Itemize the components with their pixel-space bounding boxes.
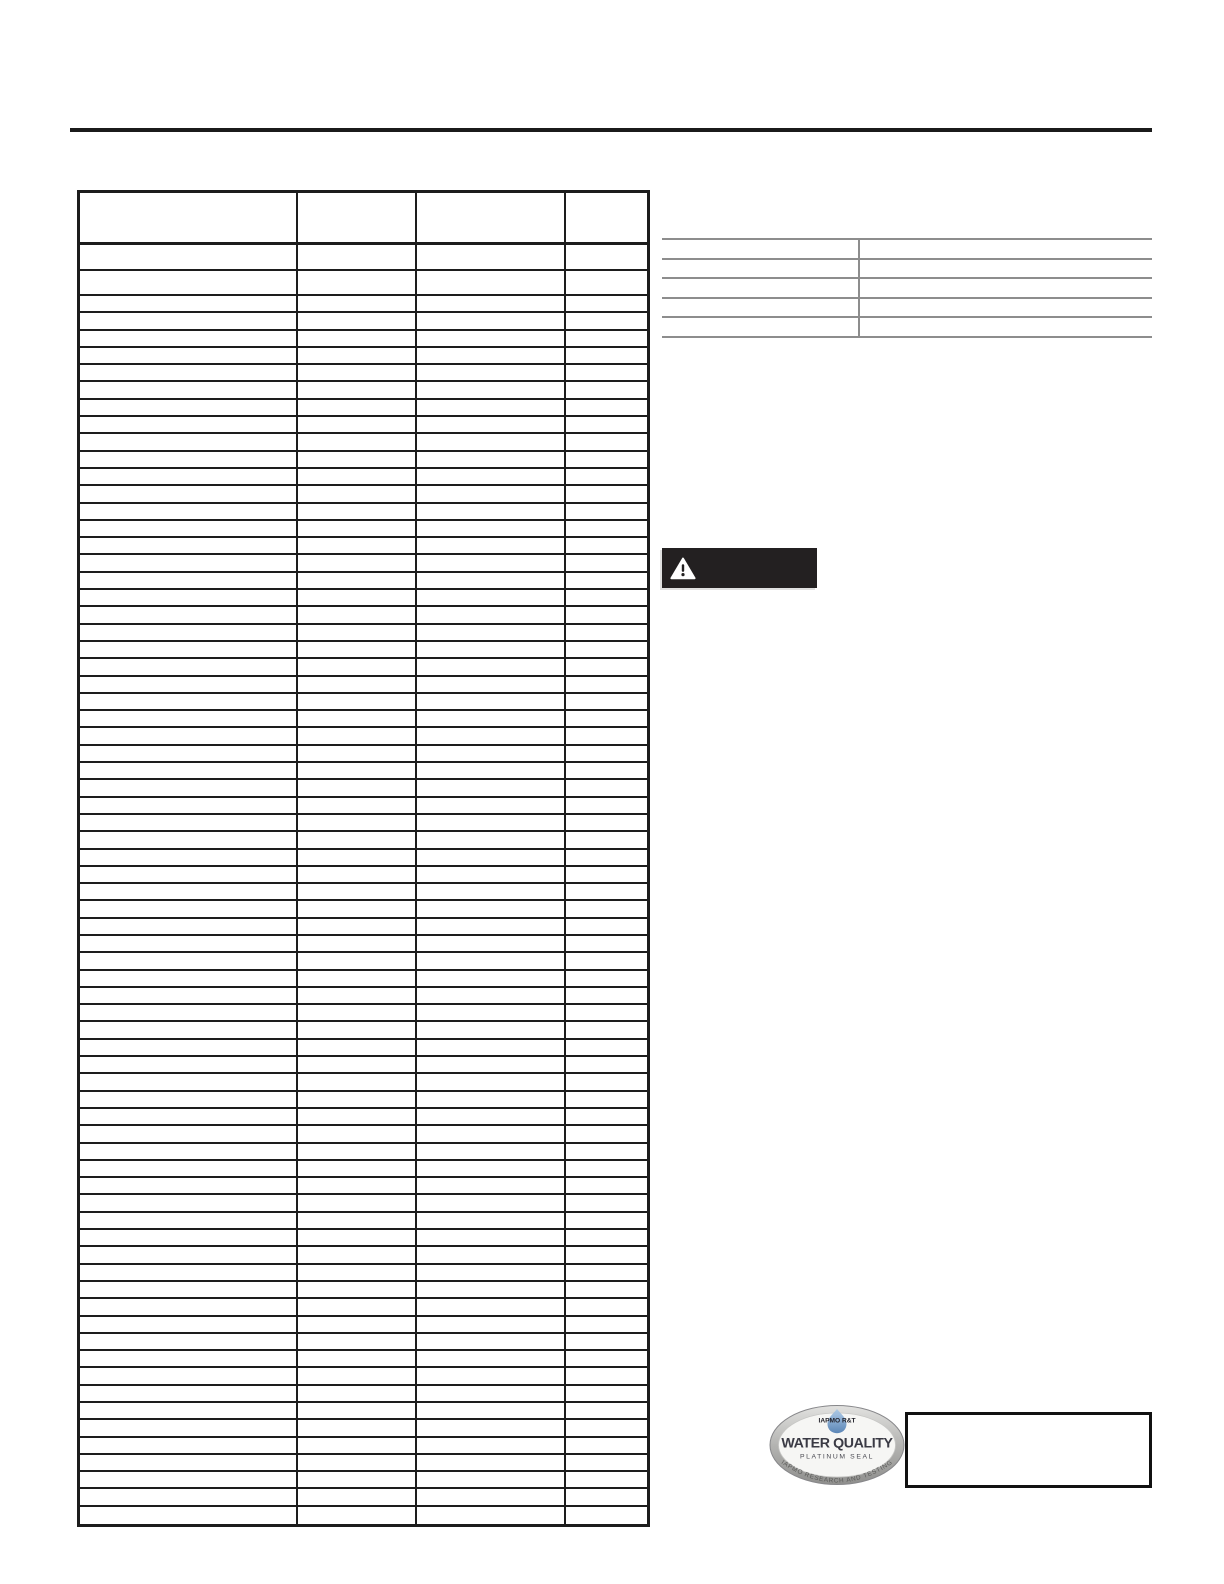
table-cell [564, 469, 647, 484]
table-row [80, 659, 647, 676]
table-cell [415, 780, 564, 795]
table-cell [80, 538, 296, 553]
header-cell [80, 193, 296, 242]
table-cell [80, 1334, 296, 1349]
table-cell [80, 555, 296, 570]
table-cell [296, 331, 415, 346]
table-cell [296, 1368, 415, 1383]
table-cell [296, 1074, 415, 1089]
header-cell [415, 193, 564, 242]
table-cell [296, 884, 415, 899]
table-cell [80, 271, 296, 295]
table-row [80, 1040, 647, 1057]
table-cell [415, 400, 564, 415]
table-cell [662, 260, 860, 278]
table-cell [564, 1438, 647, 1453]
table-cell [296, 936, 415, 951]
table-row [80, 971, 647, 988]
table-cell [296, 348, 415, 363]
table-row [80, 850, 647, 867]
table-cell [80, 1386, 296, 1401]
table-cell [564, 988, 647, 1003]
table-cell [80, 365, 296, 380]
table-row [80, 746, 647, 763]
table-row [80, 521, 647, 538]
table-cell [296, 521, 415, 536]
table-cell [80, 936, 296, 951]
table-cell [564, 1144, 647, 1159]
table-row [80, 1334, 647, 1351]
table-cell [296, 711, 415, 726]
table-row [80, 1074, 647, 1091]
table-row [80, 1092, 647, 1109]
table-cell [296, 504, 415, 519]
table-cell [415, 469, 564, 484]
table-cell [564, 607, 647, 622]
table-cell [415, 936, 564, 951]
table-row [80, 1109, 647, 1126]
table-cell [296, 642, 415, 657]
table-cell [415, 659, 564, 674]
warning-triangle-icon [670, 557, 696, 580]
table-cell [296, 1195, 415, 1210]
table-cell [296, 1265, 415, 1280]
table-cell [564, 1247, 647, 1262]
table-cell [80, 1247, 296, 1262]
table-cell [564, 271, 647, 295]
table-row [662, 297, 1152, 317]
table-cell [415, 1247, 564, 1262]
table-cell [80, 1299, 296, 1314]
table-row [80, 884, 647, 901]
table-cell [415, 798, 564, 813]
table-cell [564, 1299, 647, 1314]
table-cell [415, 832, 564, 847]
table-cell [564, 1472, 647, 1487]
table-cell [564, 1040, 647, 1055]
table-cell [415, 1144, 564, 1159]
table-cell [296, 1282, 415, 1297]
table-cell [415, 348, 564, 363]
table-row [80, 590, 647, 607]
table-row [80, 486, 647, 503]
table-cell [80, 504, 296, 519]
table-cell [80, 382, 296, 397]
table-cell [564, 1057, 647, 1072]
table-cell [80, 1403, 296, 1418]
table-cell [80, 1265, 296, 1280]
table-cell [80, 1195, 296, 1210]
table-cell [564, 625, 647, 640]
table-cell [80, 953, 296, 968]
table-row [80, 348, 647, 365]
table-cell [415, 1317, 564, 1332]
table-cell [296, 832, 415, 847]
table-row [80, 1489, 647, 1506]
table-cell [415, 694, 564, 709]
table-cell [415, 382, 564, 397]
table-cell [296, 1489, 415, 1504]
table-cell [860, 318, 1152, 336]
table-cell [564, 901, 647, 916]
table-cell [415, 607, 564, 622]
table-row [80, 452, 647, 469]
table-cell [415, 1472, 564, 1487]
table-row [662, 316, 1152, 336]
table-cell [296, 434, 415, 449]
table-cell [80, 1005, 296, 1020]
table-row [80, 936, 647, 953]
table-cell [564, 711, 647, 726]
table-cell [80, 1507, 296, 1524]
table-cell [80, 1092, 296, 1107]
table-row [80, 1230, 647, 1247]
table-cell [296, 452, 415, 467]
table-cell [415, 625, 564, 640]
table-row [80, 867, 647, 884]
table-row [80, 625, 647, 642]
table-row [80, 313, 647, 330]
table-cell [296, 1109, 415, 1124]
table-cell [80, 832, 296, 847]
header-cell [296, 193, 415, 242]
table-cell [296, 555, 415, 570]
table-cell [80, 815, 296, 830]
table-cell [80, 780, 296, 795]
table-row [80, 901, 647, 918]
table-cell [80, 417, 296, 432]
table-cell [80, 884, 296, 899]
table-cell [80, 348, 296, 363]
header-cell [564, 193, 647, 242]
table-cell [415, 919, 564, 934]
table-cell [296, 469, 415, 484]
table-cell [296, 1438, 415, 1453]
table-cell [415, 1489, 564, 1504]
table-cell [296, 296, 415, 311]
table-cell [564, 1092, 647, 1107]
table-row [80, 677, 647, 694]
table-cell [564, 382, 647, 397]
table-row [80, 1403, 647, 1420]
certification-box [905, 1412, 1152, 1488]
table-cell [80, 1040, 296, 1055]
table-cell [415, 901, 564, 916]
table-row [80, 1161, 647, 1178]
table-cell [564, 728, 647, 743]
table-cell [860, 299, 1152, 317]
table-cell [296, 1022, 415, 1037]
table-cell [80, 659, 296, 674]
table-cell [415, 245, 564, 269]
table-row [80, 694, 647, 711]
table-cell [415, 1092, 564, 1107]
table-cell [80, 642, 296, 657]
table-cell [80, 901, 296, 916]
table-cell [296, 486, 415, 501]
table-cell [564, 1489, 647, 1504]
table-cell [296, 1213, 415, 1228]
table-cell [296, 538, 415, 553]
table-cell [296, 780, 415, 795]
table-row [80, 1507, 647, 1524]
table-cell [415, 1265, 564, 1280]
table-cell [296, 728, 415, 743]
table-row [80, 1126, 647, 1143]
table-cell [564, 573, 647, 588]
table-cell [415, 331, 564, 346]
table-row [80, 1265, 647, 1282]
table-cell [80, 850, 296, 865]
table-cell [415, 1074, 564, 1089]
table-row [80, 382, 647, 399]
table-cell [415, 642, 564, 657]
table-cell [415, 1386, 564, 1401]
table-cell [80, 1144, 296, 1159]
table-row [80, 1438, 647, 1455]
table-cell [564, 417, 647, 432]
table-cell [564, 1334, 647, 1349]
table-row [80, 1247, 647, 1264]
table-row [80, 1005, 647, 1022]
table-cell [296, 1178, 415, 1193]
table-cell [415, 486, 564, 501]
table-row [80, 417, 647, 434]
table-cell [564, 1420, 647, 1435]
table-cell [415, 815, 564, 830]
table-cell [415, 971, 564, 986]
table-cell [860, 260, 1152, 278]
table-cell [564, 1022, 647, 1037]
table-cell [296, 1455, 415, 1470]
table-cell [564, 1195, 647, 1210]
table-cell [80, 1420, 296, 1435]
table-cell [415, 1299, 564, 1314]
table-cell [662, 279, 860, 297]
table-cell [415, 417, 564, 432]
table-cell [564, 1109, 647, 1124]
table-cell [415, 1282, 564, 1297]
table-cell [80, 746, 296, 761]
table-cell [564, 1230, 647, 1245]
table-cell [415, 590, 564, 605]
table-cell [564, 798, 647, 813]
table-cell [564, 1178, 647, 1193]
table-cell [564, 538, 647, 553]
table-row [80, 331, 647, 348]
table-row [80, 469, 647, 486]
table-cell [564, 850, 647, 865]
table-row [80, 1299, 647, 1316]
table-cell [80, 1126, 296, 1141]
table-cell [415, 1005, 564, 1020]
table-cell [415, 504, 564, 519]
table-row [80, 607, 647, 624]
table-cell [296, 1420, 415, 1435]
table-cell [80, 1230, 296, 1245]
table-cell [296, 365, 415, 380]
table-cell [564, 936, 647, 951]
table-cell [415, 538, 564, 553]
table-cell [80, 1455, 296, 1470]
table-row [80, 1351, 647, 1368]
table-cell [415, 521, 564, 536]
table-cell [415, 746, 564, 761]
table-cell [80, 867, 296, 882]
table-cell [80, 313, 296, 328]
table-cell [296, 677, 415, 692]
table-cell [296, 953, 415, 968]
table-cell [80, 245, 296, 269]
table-cell [564, 331, 647, 346]
table-cell [296, 590, 415, 605]
table-cell [415, 1161, 564, 1176]
table-cell [80, 521, 296, 536]
table-row [80, 798, 647, 815]
table-cell [415, 1040, 564, 1055]
water-quality-seal-graphic: IAPMO R&T WATER QUALITY PLATINUM SEAL IA… [768, 1404, 906, 1504]
table-cell [80, 469, 296, 484]
table-cell [415, 434, 564, 449]
table-row [80, 711, 647, 728]
table-cell [296, 417, 415, 432]
table-cell [296, 1299, 415, 1314]
table-cell [564, 1213, 647, 1228]
table-cell [564, 1368, 647, 1383]
table-cell [564, 1161, 647, 1176]
table-row [80, 538, 647, 555]
table-cell [296, 245, 415, 269]
table-row [80, 573, 647, 590]
table-cell [80, 763, 296, 778]
table-cell [415, 1109, 564, 1124]
table-cell [80, 607, 296, 622]
table-cell [415, 1420, 564, 1435]
parts-table [77, 190, 650, 1527]
table-row [80, 555, 647, 572]
table-cell [415, 1126, 564, 1141]
table-cell [296, 798, 415, 813]
table-row [80, 1178, 647, 1195]
table-cell [296, 1403, 415, 1418]
table-cell [296, 659, 415, 674]
table-row [80, 1213, 647, 1230]
table-cell [564, 1317, 647, 1332]
table-cell [296, 919, 415, 934]
table-cell [564, 590, 647, 605]
table-row [80, 1386, 647, 1403]
header-divider-rule [70, 128, 1152, 132]
table-cell [296, 971, 415, 986]
table-cell [80, 798, 296, 813]
table-row [80, 400, 647, 417]
table-cell [564, 815, 647, 830]
table-cell [564, 365, 647, 380]
table-cell [415, 953, 564, 968]
table-cell [296, 1386, 415, 1401]
table-row [80, 1022, 647, 1039]
table-cell [415, 1351, 564, 1366]
table-cell [80, 1438, 296, 1453]
table-cell [564, 919, 647, 934]
table-row [80, 1317, 647, 1334]
table-cell [296, 1317, 415, 1332]
table-row [80, 815, 647, 832]
table-cell [564, 1074, 647, 1089]
table-cell [415, 313, 564, 328]
table-cell [415, 1213, 564, 1228]
table-cell [564, 348, 647, 363]
table-row [80, 1057, 647, 1074]
table-cell [415, 271, 564, 295]
table-cell [564, 832, 647, 847]
table-cell [662, 318, 860, 336]
table-row [80, 1195, 647, 1212]
table-cell [415, 1022, 564, 1037]
table-cell [415, 1057, 564, 1072]
table-cell [80, 1282, 296, 1297]
table-row [662, 238, 1152, 258]
table-cell [80, 573, 296, 588]
table-cell [296, 625, 415, 640]
table-cell [860, 279, 1152, 297]
table-cell [564, 434, 647, 449]
spec-table [662, 238, 1152, 338]
table-cell [296, 1005, 415, 1020]
table-row [662, 258, 1152, 278]
table-cell [564, 867, 647, 882]
table-cell [296, 1040, 415, 1055]
table-row [80, 642, 647, 659]
table-cell [80, 1022, 296, 1037]
table-cell [564, 555, 647, 570]
table-cell [80, 296, 296, 311]
seal-org-label: IAPMO R&T [819, 1418, 856, 1425]
table-cell [80, 728, 296, 743]
table-cell [80, 625, 296, 640]
table-cell [415, 1368, 564, 1383]
table-cell [80, 1472, 296, 1487]
table-cell [415, 1230, 564, 1245]
table-row [80, 1472, 647, 1489]
table-cell [296, 382, 415, 397]
table-cell [80, 1074, 296, 1089]
table-row [80, 728, 647, 745]
table-cell [415, 1178, 564, 1193]
table-cell [80, 694, 296, 709]
table-cell [564, 521, 647, 536]
table-cell [415, 452, 564, 467]
table-row [80, 296, 647, 313]
document-page: IAPMO R&T WATER QUALITY PLATINUM SEAL IA… [0, 0, 1224, 1584]
table-cell [564, 971, 647, 986]
seal-title: WATER QUALITY [781, 1436, 893, 1452]
table-row [80, 365, 647, 382]
table-cell [80, 1351, 296, 1366]
table-cell [296, 1472, 415, 1487]
table-cell [296, 1144, 415, 1159]
table-cell [415, 555, 564, 570]
table-cell [296, 867, 415, 882]
table-row [662, 277, 1152, 297]
table-cell [80, 919, 296, 934]
table-cell [564, 953, 647, 968]
table-cell [564, 659, 647, 674]
parts-table-body [80, 245, 647, 1524]
parts-table-header-row [80, 193, 647, 245]
table-cell [80, 452, 296, 467]
table-row [80, 780, 647, 797]
